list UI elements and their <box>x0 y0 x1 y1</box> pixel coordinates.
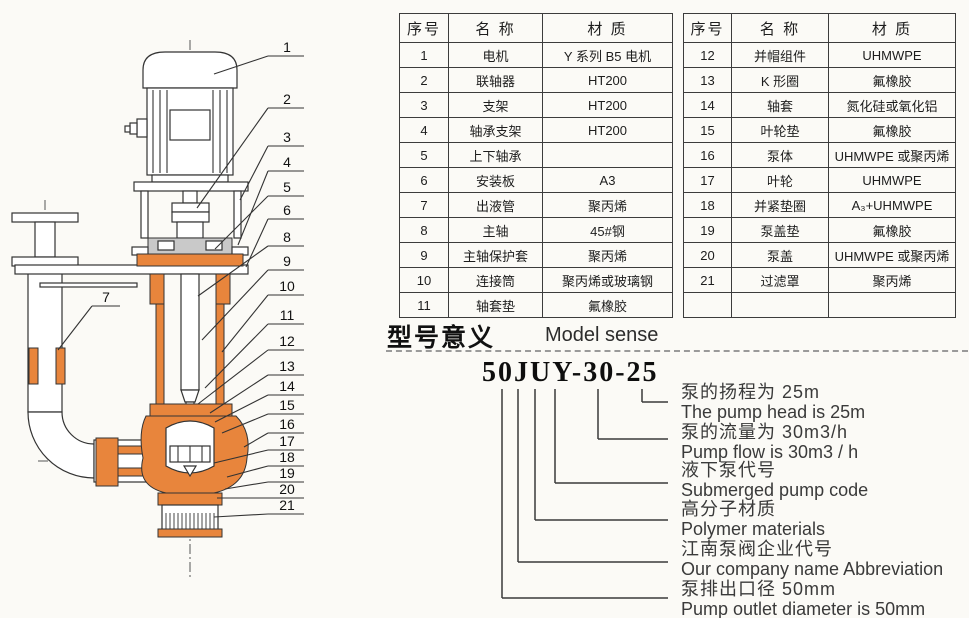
table-cell: 9 <box>400 243 449 268</box>
table-row: 17叶轮UHMWPE <box>684 168 956 193</box>
table-cell: 7 <box>400 193 449 218</box>
table-cell: UHMWPE 或聚丙烯 <box>829 143 956 168</box>
model-explanation: 江南泵阀企业代号Our company name Abbreviation <box>681 539 943 579</box>
table-row: 12并帽组件UHMWPE <box>684 43 956 68</box>
callout-number: 5 <box>283 179 291 195</box>
table-cell: 轴套垫 <box>449 293 543 318</box>
callout-number: 18 <box>279 449 295 465</box>
table-cell: 1 <box>400 43 449 68</box>
table-cell: 6 <box>400 168 449 193</box>
table-row: 8主轴45#钢 <box>400 218 673 243</box>
table-cell: A3 <box>543 168 673 193</box>
table-cell: 主轴保护套 <box>449 243 543 268</box>
table-cell: 安装板 <box>449 168 543 193</box>
table-cell: 17 <box>684 168 732 193</box>
table-cell: 轴套 <box>732 93 829 118</box>
table-cell: 18 <box>684 193 732 218</box>
leader-line <box>240 146 268 200</box>
table-cell: 连接筒 <box>449 268 543 293</box>
callout-number: 9 <box>283 253 291 269</box>
table-cell: 并帽组件 <box>732 43 829 68</box>
model-explanation: 液下泵代号Submerged pump code <box>681 460 868 500</box>
table-row: 19泵盖垫氟橡胶 <box>684 218 956 243</box>
table-row: 1电机Y 系列 B5 电机 <box>400 43 673 68</box>
table-cell: 2 <box>400 68 449 93</box>
table-row: 4轴承支架HT200 <box>400 118 673 143</box>
table-cell: 12 <box>684 43 732 68</box>
table-cell: 轴承支架 <box>449 118 543 143</box>
table-cell: 聚丙烯 <box>829 268 956 293</box>
model-explanation-zh: 泵排出口径 50mm <box>681 579 925 599</box>
discharge-pipe <box>12 213 152 486</box>
model-explanation-en: Polymer materials <box>681 519 825 539</box>
table-cell: Y 系列 B5 电机 <box>543 43 673 68</box>
section-divider <box>386 350 968 352</box>
callout-number: 11 <box>280 307 295 323</box>
model-explanation: 泵的扬程为 25mThe pump head is 25m <box>681 382 865 422</box>
callout-number: 8 <box>283 229 291 245</box>
table-row: 16泵体UHMWPE 或聚丙烯 <box>684 143 956 168</box>
model-explanation-en: The pump head is 25m <box>681 402 865 422</box>
model-explanation-en: Submerged pump code <box>681 480 868 500</box>
model-number: 50JUY-30-25 <box>482 357 659 389</box>
pump-sectional-diagram: 123456891011121314151617181920217 <box>0 0 400 618</box>
table-cell: 聚丙烯或玻璃钢 <box>543 268 673 293</box>
table-cell: 16 <box>684 143 732 168</box>
table-row: 10连接筒聚丙烯或玻璃钢 <box>400 268 673 293</box>
callout-number: 14 <box>279 378 295 394</box>
table-row: 21过滤罩聚丙烯 <box>684 268 956 293</box>
table-cell: 10 <box>400 268 449 293</box>
table-cell: 叶轮 <box>732 168 829 193</box>
table-row: 6安装板A3 <box>400 168 673 193</box>
table-cell: 聚丙烯 <box>543 243 673 268</box>
table-row: 9主轴保护套聚丙烯 <box>400 243 673 268</box>
model-explanation-zh: 泵的流量为 30m3/h <box>681 422 858 442</box>
column-header-1: 名 称 <box>449 14 543 43</box>
table-cell: 20 <box>684 243 732 268</box>
pump-cover <box>158 493 222 505</box>
table-row: 3支架HT200 <box>400 93 673 118</box>
table-cell: 叶轮垫 <box>732 118 829 143</box>
model-explanation: 高分子材质Polymer materials <box>681 499 825 539</box>
table-row: 15叶轮垫氟橡胶 <box>684 118 956 143</box>
table-cell: 支架 <box>449 93 543 118</box>
table-row: 7出液管聚丙烯 <box>400 193 673 218</box>
table-cell: 泵盖垫 <box>732 218 829 243</box>
parts-table-items-12-21: 序号名 称材 质12并帽组件UHMWPE13K 形圈氟橡胶14轴套氮化硅或氧化铝… <box>683 13 956 318</box>
table-cell: 氟橡胶 <box>543 293 673 318</box>
table-cell: 8 <box>400 218 449 243</box>
model-explanation-zh: 液下泵代号 <box>681 460 868 480</box>
catalog-page: 123456891011121314151617181920217 序号名 称材… <box>0 0 969 618</box>
table-row: 11轴套垫氟橡胶 <box>400 293 673 318</box>
table-row: 18并紧垫圈A₃+UHMWPE <box>684 193 956 218</box>
table-cell <box>543 143 673 168</box>
column-header-0: 序号 <box>400 14 449 43</box>
callout-number: 7 <box>102 289 110 305</box>
table-cell: 氟橡胶 <box>829 118 956 143</box>
table-row: 13K 形圈氟橡胶 <box>684 68 956 93</box>
table-cell: 氟橡胶 <box>829 68 956 93</box>
callout-number: 17 <box>279 433 295 449</box>
table-cell: 11 <box>400 293 449 318</box>
callout-number: 21 <box>279 497 295 513</box>
bearing-bracket <box>132 238 248 255</box>
table-cell: 13 <box>684 68 732 93</box>
table-row: 20泵盖UHMWPE 或聚丙烯 <box>684 243 956 268</box>
parts-table-items-1-11: 序号名 称材 质1电机Y 系列 B5 电机2联轴器HT2003支架HT2004轴… <box>399 13 673 318</box>
table-cell: 21 <box>684 268 732 293</box>
callout-number: 12 <box>279 333 295 349</box>
table-cell: 3 <box>400 93 449 118</box>
model-explanation-zh: 泵的扬程为 25m <box>681 382 865 402</box>
model-explanation-en: Our company name Abbreviation <box>681 559 943 579</box>
table-cell: 泵盖 <box>732 243 829 268</box>
callout-number: 13 <box>279 358 295 374</box>
table-cell <box>829 293 956 318</box>
table-cell: HT200 <box>543 93 673 118</box>
model-explanation-en: Pump flow is 30m3 / h <box>681 442 858 462</box>
table-cell: 45#钢 <box>543 218 673 243</box>
table-cell: 出液管 <box>449 193 543 218</box>
model-explanation: 泵的流量为 30m3/hPump flow is 30m3 / h <box>681 422 858 462</box>
table-cell <box>684 293 732 318</box>
table-cell: 15 <box>684 118 732 143</box>
table-cell: 聚丙烯 <box>543 193 673 218</box>
model-explanation: 泵排出口径 50mmPump outlet diameter is 50mm <box>681 579 925 618</box>
column-header-2: 材 质 <box>829 14 956 43</box>
table-cell: 14 <box>684 93 732 118</box>
table-cell: 电机 <box>449 43 543 68</box>
table-cell: 泵体 <box>732 143 829 168</box>
table-cell: 19 <box>684 218 732 243</box>
model-section-title-zh: 型号意义 <box>387 318 495 354</box>
table-cell: HT200 <box>543 118 673 143</box>
table-cell: 主轴 <box>449 218 543 243</box>
strainer <box>158 505 222 537</box>
callout-number: 10 <box>279 278 295 294</box>
table-cell: 联轴器 <box>449 68 543 93</box>
table-cell: UHMWPE <box>829 43 956 68</box>
table-cell: 并紧垫圈 <box>732 193 829 218</box>
leader-line <box>58 306 92 350</box>
callout-number: 20 <box>279 481 295 497</box>
table-cell: 氮化硅或氧化铝 <box>829 93 956 118</box>
table-cell: HT200 <box>543 68 673 93</box>
callout-number: 16 <box>279 416 295 432</box>
table-row: 2联轴器HT200 <box>400 68 673 93</box>
callout-number: 15 <box>279 397 295 413</box>
table-cell: 上下轴承 <box>449 143 543 168</box>
model-section-title-en: Model sense <box>545 324 658 347</box>
callout-number: 3 <box>283 129 291 145</box>
leader-line <box>198 350 268 404</box>
table-row: 14轴套氮化硅或氧化铝 <box>684 93 956 118</box>
model-explanation-zh: 高分子材质 <box>681 499 825 519</box>
table-cell: UHMWPE <box>829 168 956 193</box>
table-cell <box>732 293 829 318</box>
leader-line <box>214 514 268 517</box>
table-cell: 5 <box>400 143 449 168</box>
table-cell: 过滤罩 <box>732 268 829 293</box>
table-cell: 氟橡胶 <box>829 218 956 243</box>
callout-number: 4 <box>283 154 291 170</box>
column-header-2: 材 质 <box>543 14 673 43</box>
table-row <box>684 293 956 318</box>
callout-number: 19 <box>279 465 295 481</box>
table-row: 5上下轴承 <box>400 143 673 168</box>
callout-number: 6 <box>283 202 291 218</box>
callout-number: 2 <box>283 91 291 107</box>
table-cell: 4 <box>400 118 449 143</box>
model-explanation-zh: 江南泵阀企业代号 <box>681 539 943 559</box>
column-header-1: 名 称 <box>732 14 829 43</box>
model-explanation-en: Pump outlet diameter is 50mm <box>681 599 925 618</box>
table-cell: K 形圈 <box>732 68 829 93</box>
leader-line <box>202 270 268 340</box>
callout-number: 1 <box>283 39 291 55</box>
column-header-0: 序号 <box>684 14 732 43</box>
table-cell: UHMWPE 或聚丙烯 <box>829 243 956 268</box>
table-cell: A₃+UHMWPE <box>829 193 956 218</box>
